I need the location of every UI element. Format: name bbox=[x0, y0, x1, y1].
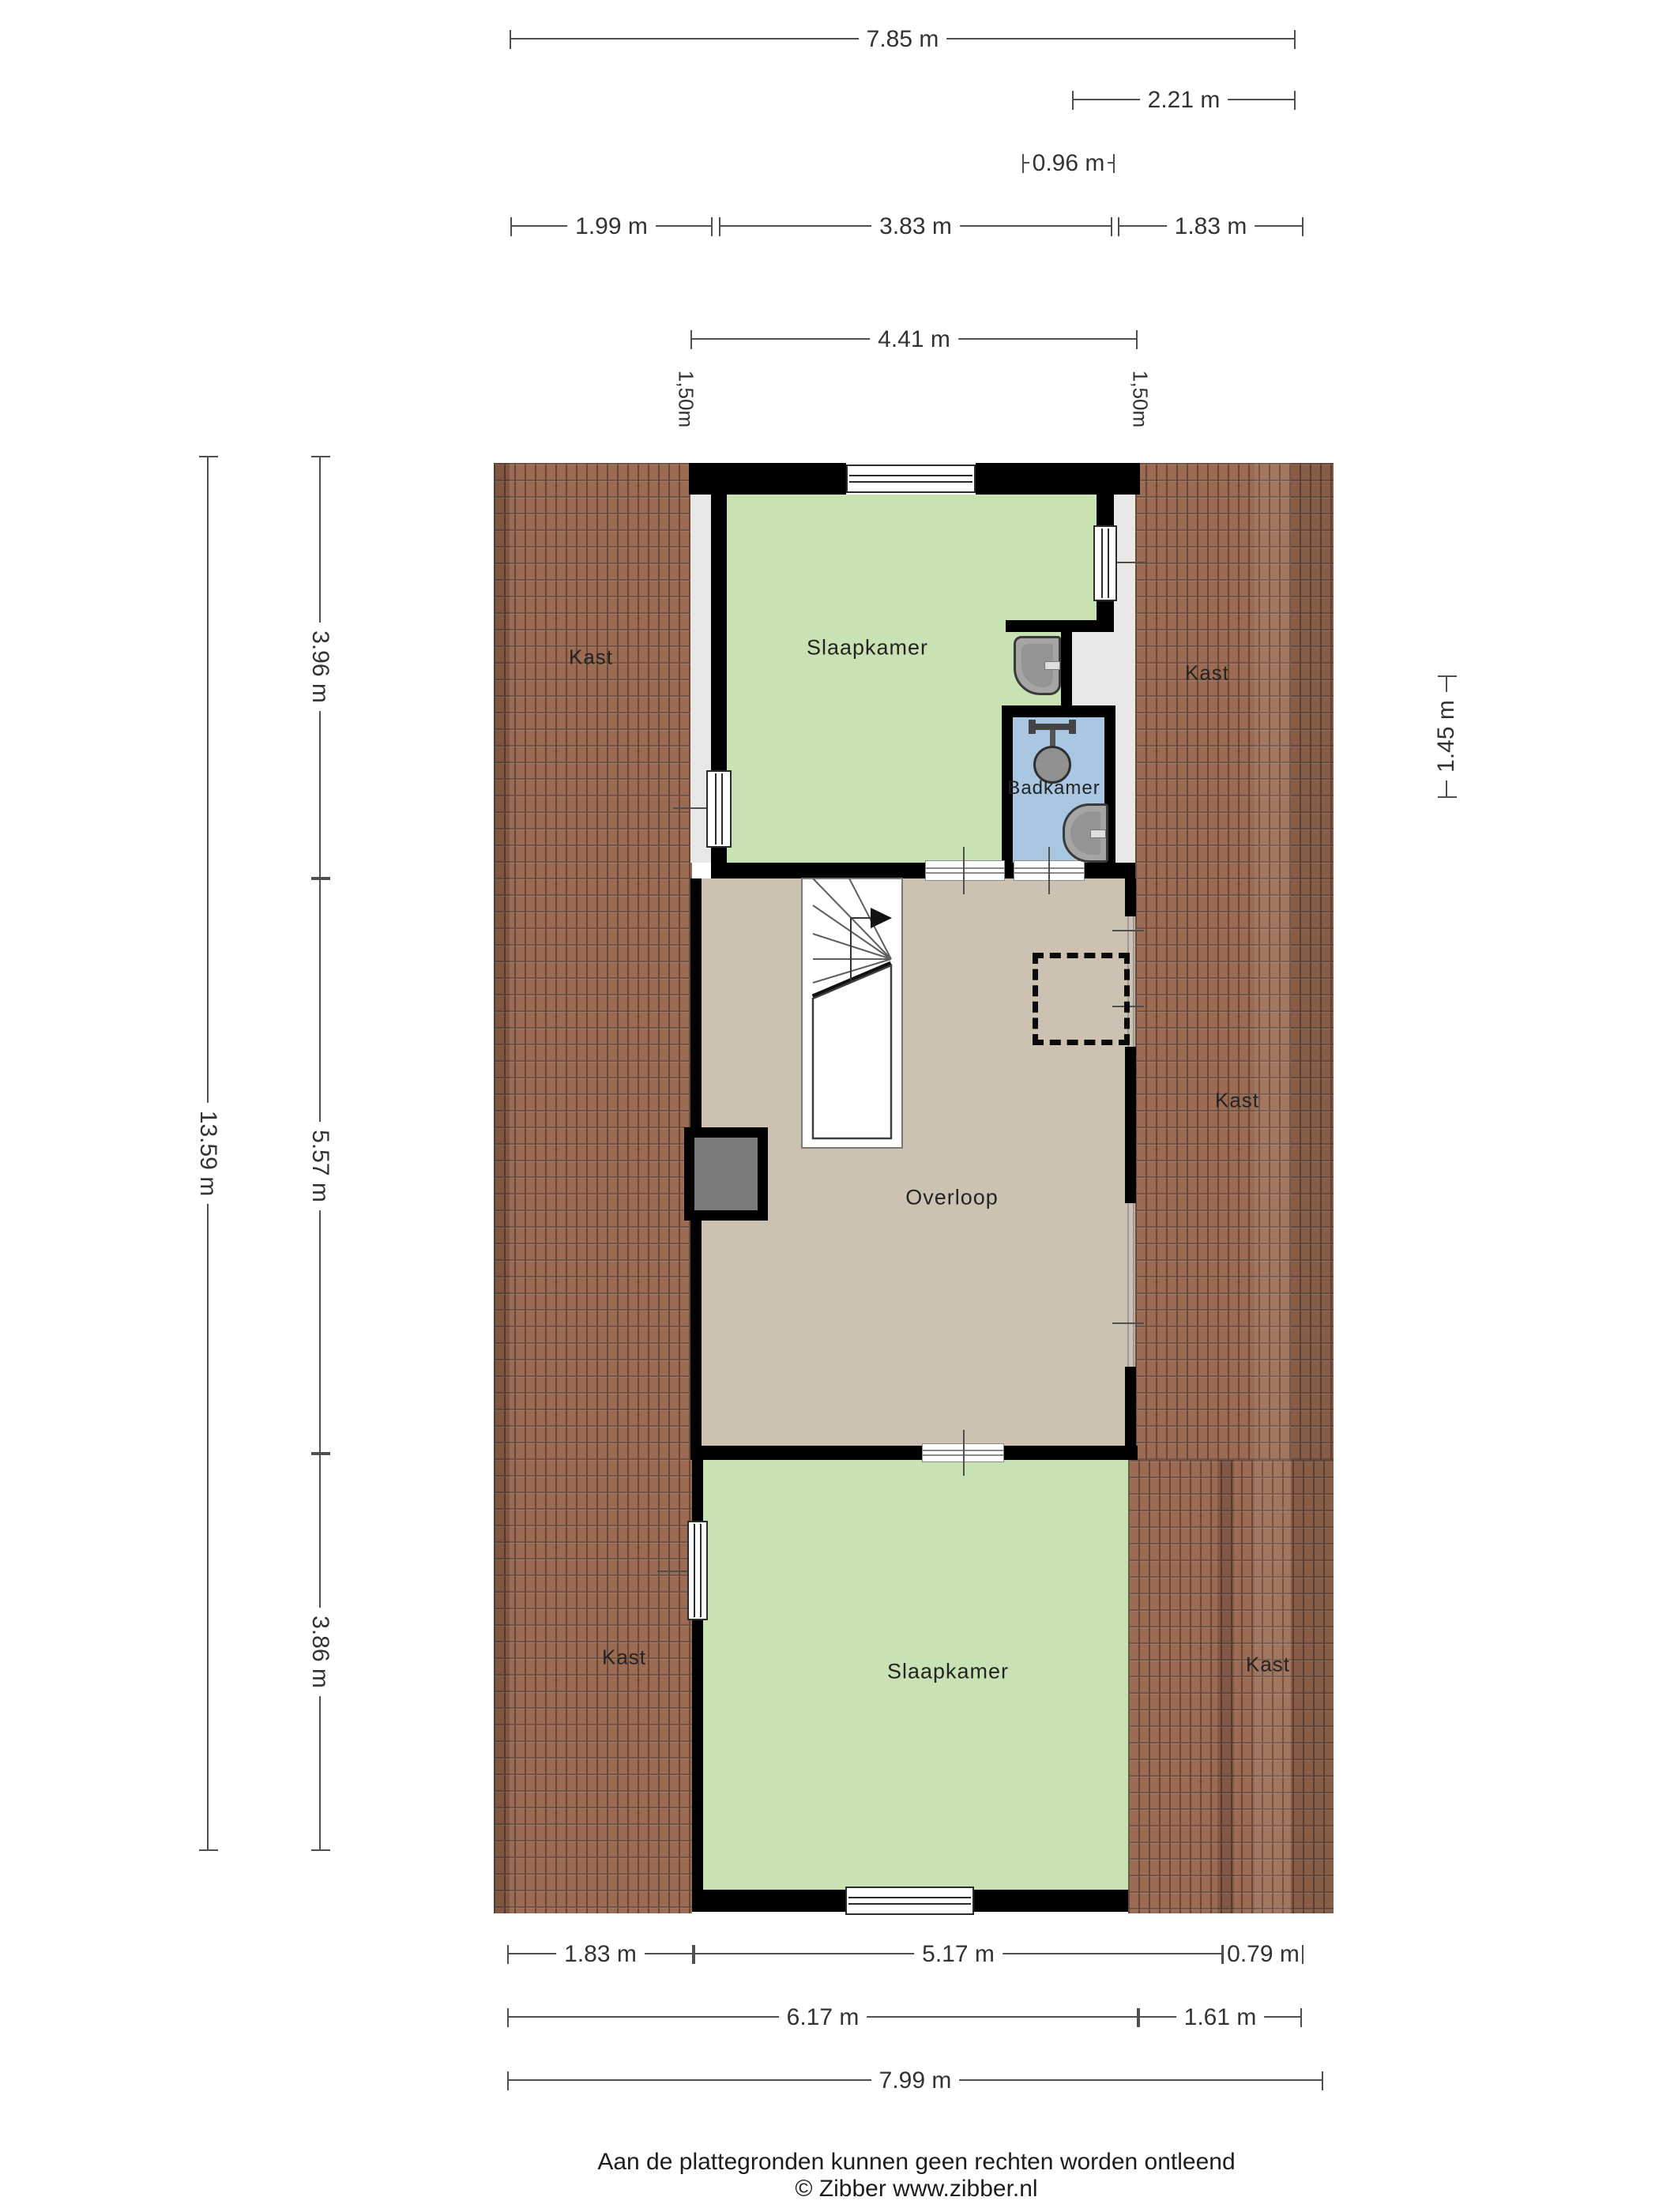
dim-799: 7.99 m bbox=[507, 2079, 1323, 2081]
footer-disclaimer: Aan de plattegronden kunnen geen rechten… bbox=[316, 2149, 1517, 2176]
footer-copyright: © Zibber www.zibber.nl bbox=[316, 2176, 1517, 2203]
shower-bar-icon bbox=[1033, 724, 1072, 730]
dim-183-top: 1.83 m bbox=[1118, 225, 1303, 227]
dim-199: 1.99 m bbox=[510, 225, 713, 227]
washbasin-bathroom-faucet-icon bbox=[1090, 829, 1106, 838]
dim-150-left: 1,50m bbox=[674, 371, 698, 427]
opening-bedtop bbox=[925, 860, 1005, 881]
skylight-dashed-box bbox=[1033, 953, 1130, 1045]
roof-left bbox=[494, 463, 692, 1913]
dim-183-bottom: 1.83 m bbox=[507, 1953, 694, 1954]
wall-bedbot-left-b bbox=[692, 1620, 703, 1890]
dim-396-label: 3.96 m bbox=[307, 623, 333, 711]
wall-right-seg1 bbox=[1125, 878, 1136, 916]
window-bedtop-left bbox=[706, 770, 732, 848]
room-label-kast-top-right: Kast bbox=[1185, 661, 1229, 686]
floor-pocket bbox=[1072, 632, 1114, 705]
window-bedtop-left-tick bbox=[673, 807, 706, 809]
opening-bathroom-tick bbox=[1048, 847, 1050, 894]
wall-section2 bbox=[690, 1446, 1138, 1460]
room-label-badkamer: Badkamer bbox=[1007, 777, 1100, 799]
window-bedtop-right bbox=[1093, 525, 1117, 601]
wall-right-seg3 bbox=[1125, 1367, 1136, 1446]
window-bottom bbox=[845, 1887, 974, 1915]
dim-441: 4.41 m bbox=[690, 338, 1138, 340]
shower-knob-left-icon bbox=[1029, 720, 1036, 734]
washbasin-bedroom-faucet-icon bbox=[1044, 661, 1060, 670]
wall-top-left bbox=[689, 463, 846, 495]
dim-517: 5.17 m bbox=[694, 1953, 1223, 1954]
dim-161: 1.61 m bbox=[1138, 2016, 1302, 2018]
dim-383: 3.83 m bbox=[719, 225, 1112, 227]
room-label-overloop: Overloop bbox=[905, 1186, 999, 1210]
wall-bedtop-right-a bbox=[1097, 495, 1114, 525]
room-label-slaapkamer-top: Slaapkamer bbox=[807, 636, 928, 660]
window-top bbox=[846, 465, 976, 493]
roof-right-upper bbox=[1135, 463, 1334, 1460]
chimney-block bbox=[684, 1127, 768, 1221]
wall-nook bbox=[1006, 620, 1114, 632]
opening-bedbot-tick bbox=[963, 1430, 965, 1476]
room-label-kast-top-left: Kast bbox=[569, 645, 613, 670]
landing-right-tick1 bbox=[1112, 930, 1144, 931]
stairs bbox=[798, 875, 908, 1153]
room-label-kast-bottom-right: Kast bbox=[1246, 1653, 1290, 1677]
bedbot-right-line bbox=[1128, 1460, 1130, 1890]
dim-1359-label: 13.59 m bbox=[194, 1103, 221, 1204]
room-label-kast-mid-right: Kast bbox=[1215, 1089, 1259, 1113]
dim-150-right: 1,50m bbox=[1128, 371, 1153, 427]
room-label-kast-bottom-left: Kast bbox=[602, 1646, 646, 1670]
wall-right-seg2 bbox=[1125, 1047, 1136, 1203]
dim-557-label: 5.57 m bbox=[307, 1122, 333, 1210]
landing-right-tick3 bbox=[1112, 1322, 1144, 1324]
wall-bedtop-left-b bbox=[711, 848, 727, 863]
roof-right-lower bbox=[1128, 1460, 1334, 1913]
opening-bedtop-tick bbox=[963, 847, 965, 894]
dim-221: 2.21 m bbox=[1072, 99, 1296, 100]
dim-386-label: 3.86 m bbox=[307, 1608, 333, 1696]
wall-bedtop-left-a bbox=[711, 495, 727, 770]
window-bedbot-left bbox=[687, 1521, 708, 1620]
wall-stub bbox=[1061, 632, 1072, 705]
window-bedbot-left-tick bbox=[657, 1571, 687, 1572]
floor-strip-right bbox=[1114, 495, 1135, 863]
dim-096: 0.96 m bbox=[1022, 162, 1115, 164]
dim-079: 0.79 m bbox=[1223, 1953, 1303, 1954]
dim-145-label: 1.45 m bbox=[1433, 692, 1460, 781]
window-bedtop-right-tick bbox=[1117, 562, 1147, 563]
room-label-slaapkamer-bottom: Slaapkamer bbox=[887, 1660, 1009, 1684]
wall-top-right bbox=[976, 463, 1140, 495]
dim-617: 6.17 m bbox=[507, 2016, 1138, 2018]
dim-785: 7.85 m bbox=[510, 38, 1296, 39]
shower-knob-right-icon bbox=[1069, 720, 1076, 734]
wall-bedbot-left-a bbox=[692, 1460, 703, 1521]
floorplan-page: Kast Slaapkamer Kast Badkamer Overloop K… bbox=[0, 0, 1659, 2212]
